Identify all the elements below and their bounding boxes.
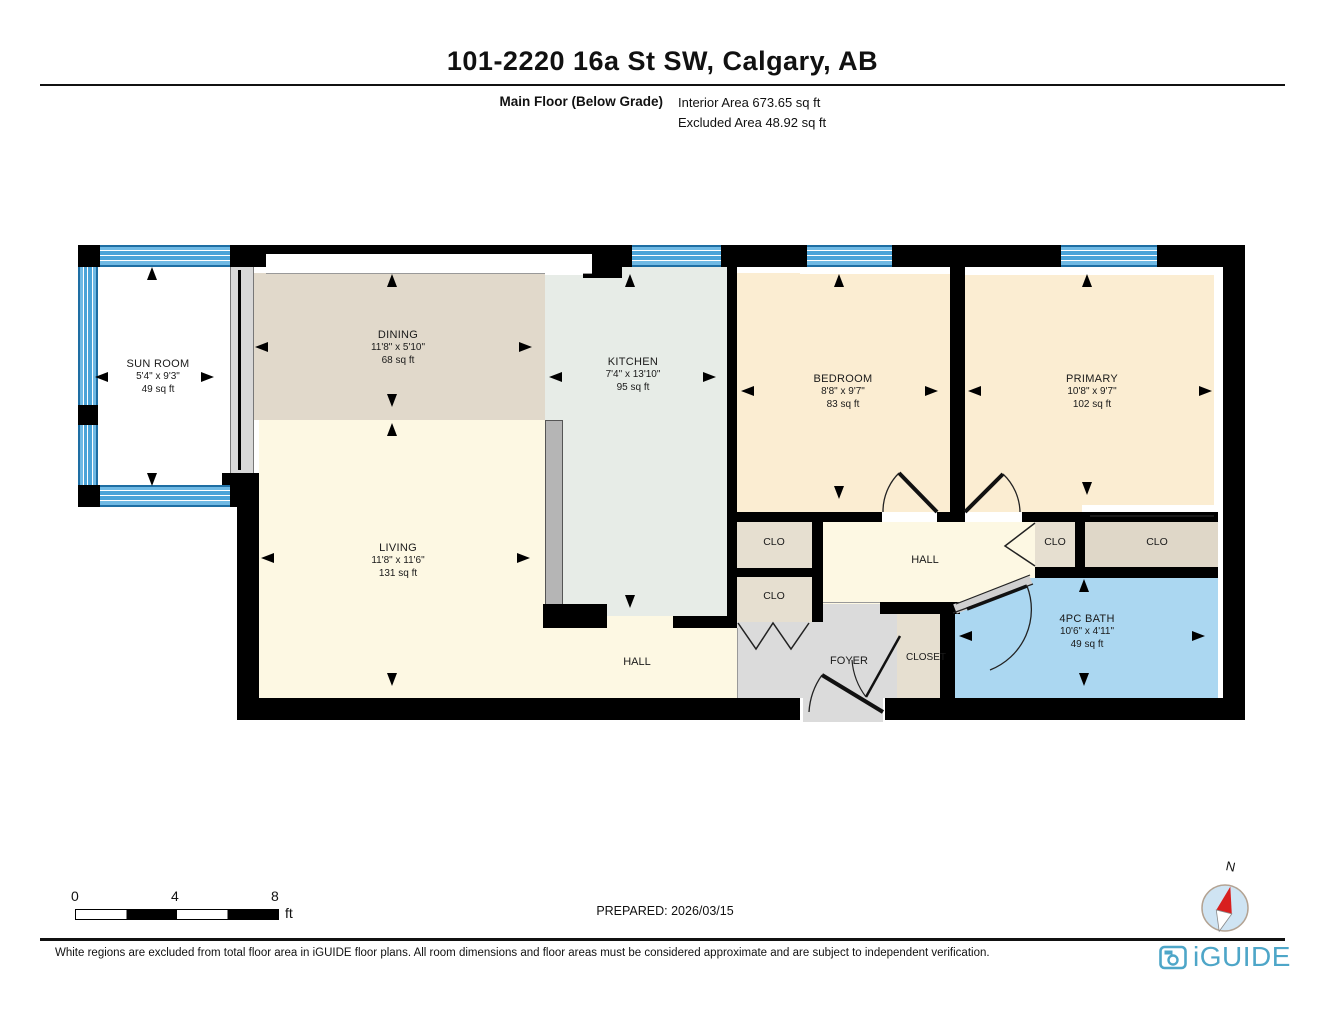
dimension-arrow — [387, 274, 397, 287]
dimension-arrow — [968, 386, 981, 396]
label-closet: CLOSET — [896, 652, 956, 663]
label-primary: PRIMARY 10'8" x 9'7" 102 sq ft — [1012, 373, 1172, 411]
dimension-arrow — [1079, 673, 1089, 686]
label-foyer: FOYER — [809, 655, 889, 667]
label-clo: CLO — [744, 590, 804, 602]
dimension-arrow — [1199, 386, 1212, 396]
scale-tick-4: 4 — [171, 888, 179, 904]
dimension-arrow — [959, 631, 972, 641]
scale-unit: ft — [285, 905, 293, 921]
dimension-arrow — [147, 473, 157, 486]
dimension-arrow — [387, 423, 397, 436]
dimension-arrow — [517, 553, 530, 563]
dimension-arrow — [147, 267, 157, 280]
label-bedroom: BEDROOM 8'8" x 9'7" 83 sq ft — [763, 373, 923, 411]
prepared-date: PREPARED: 2026/03/15 — [540, 904, 790, 918]
label-bath: 4PC BATH 10'6" x 4'11" 49 sq ft — [1007, 613, 1167, 651]
iguide-brand-text: iGUIDE — [1193, 941, 1291, 973]
label-hall: HALL — [597, 656, 677, 668]
dimension-arrow — [625, 595, 635, 608]
floor-plan-page: 101-2220 16a St SW, Calgary, AB Main Flo… — [0, 0, 1325, 1024]
scale-bar-segments — [75, 909, 279, 920]
label-clo: CLO — [744, 536, 804, 548]
disclaimer: White regions are excluded from total fl… — [55, 947, 990, 959]
dimension-arrow — [519, 342, 532, 352]
footer-divider — [40, 938, 1285, 941]
compass-icon: N — [1193, 856, 1257, 948]
scale-tick-0: 0 — [71, 888, 79, 904]
dimension-arrow — [925, 386, 938, 396]
scale-tick-8: 8 — [271, 888, 279, 904]
dimension-arrow — [1082, 274, 1092, 287]
label-kitchen: KITCHEN 7'4" x 13'10" 95 sq ft — [553, 356, 713, 394]
label-clo: CLO — [1127, 536, 1187, 548]
dimension-arrow — [834, 486, 844, 499]
label-hall: HALL — [885, 554, 965, 566]
label-living: LIVING 11'8" x 11'6" 131 sq ft — [318, 542, 478, 580]
dimension-arrow — [255, 342, 268, 352]
dimension-arrow — [1082, 482, 1092, 495]
iguide-camera-icon — [1158, 942, 1188, 972]
doors-overlay — [0, 0, 1325, 1024]
label-dining: DINING 11'8" x 5'10" 68 sq ft — [318, 329, 478, 367]
floor-plan: SUN ROOM 5'4" x 9'3" 49 sq ft DINING 11'… — [0, 0, 1325, 1024]
dimension-arrow — [1192, 631, 1205, 641]
dimension-arrow — [1079, 579, 1089, 592]
dimension-arrow — [387, 394, 397, 407]
compass-north-label: N — [1225, 858, 1237, 875]
dimension-arrow — [387, 673, 397, 686]
iguide-logo: iGUIDE — [1158, 941, 1291, 973]
dimension-arrow — [625, 274, 635, 287]
dimension-arrow — [261, 553, 274, 563]
label-clo: CLO — [1025, 536, 1085, 548]
label-sunroom: SUN ROOM 5'4" x 9'3" 49 sq ft — [78, 358, 238, 396]
dimension-arrow — [741, 386, 754, 396]
dimension-arrow — [834, 274, 844, 287]
